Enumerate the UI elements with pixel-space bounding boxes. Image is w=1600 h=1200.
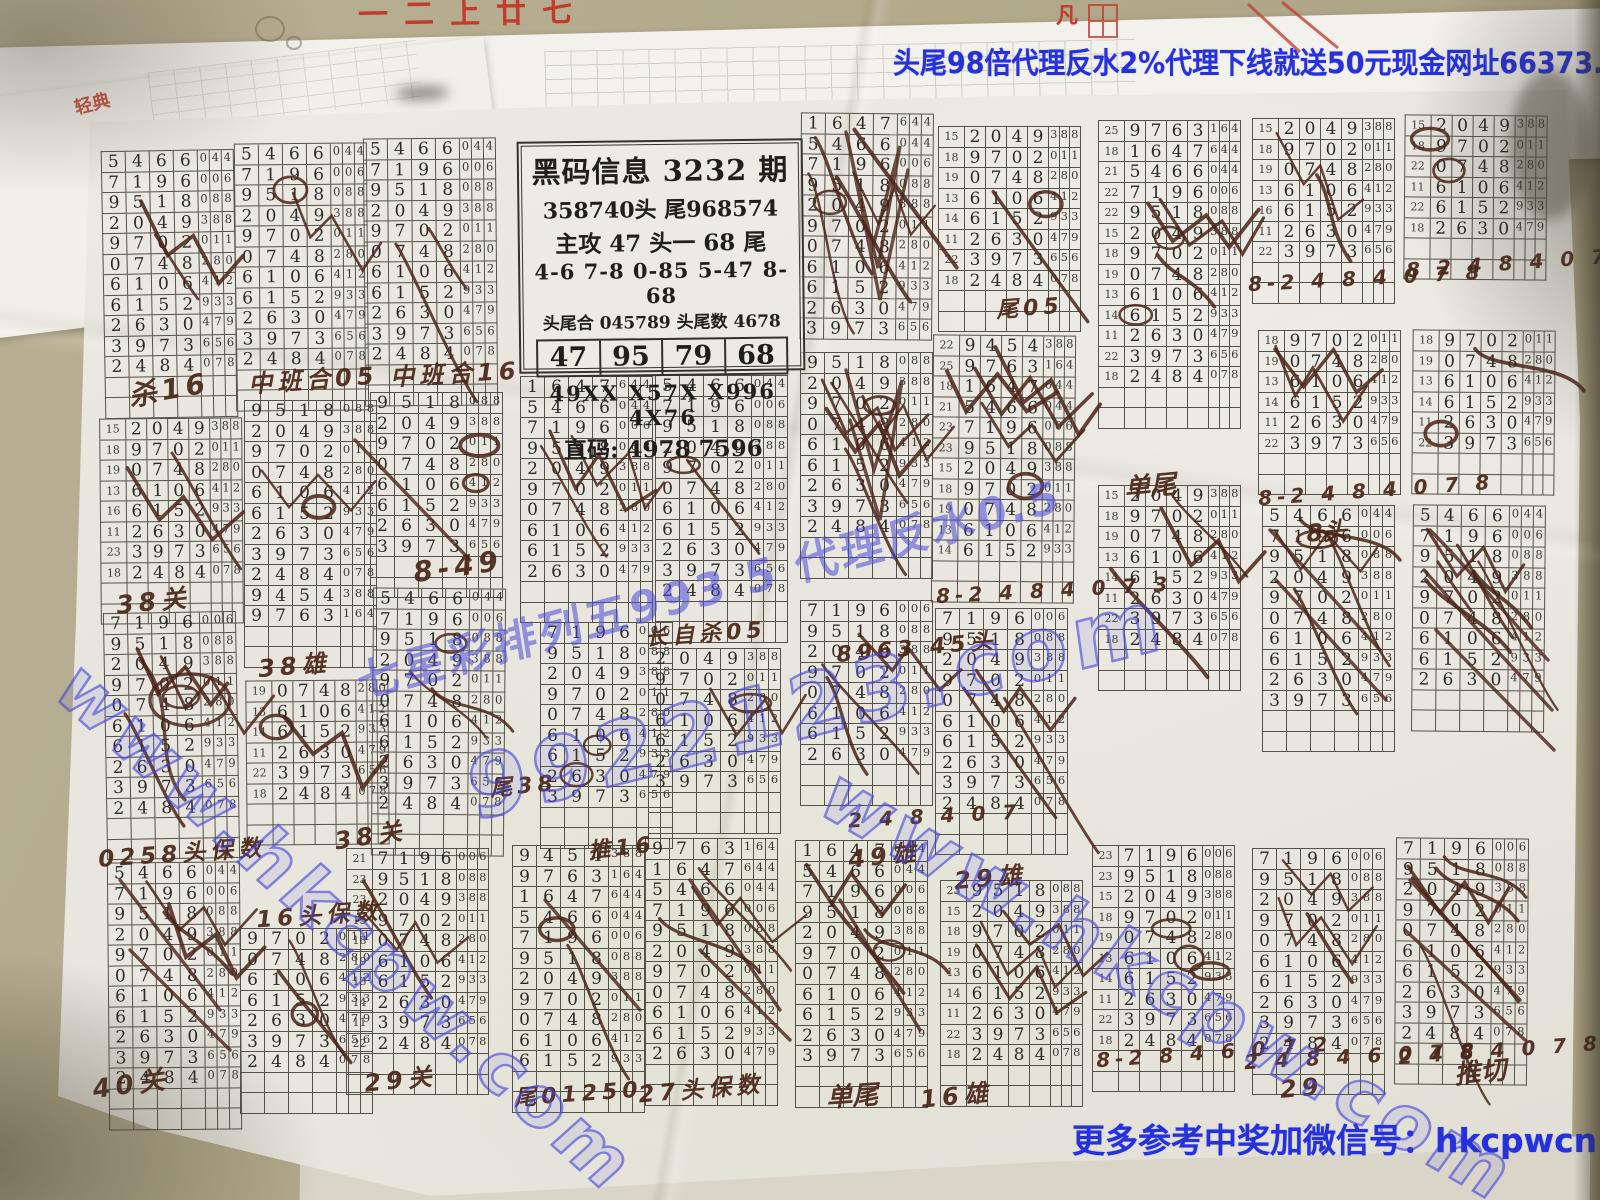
grid-cell: 6 xyxy=(373,952,394,973)
grid-row xyxy=(801,538,933,559)
grid-cell xyxy=(892,1087,904,1108)
grid-cell: 6 xyxy=(174,150,198,171)
row-index-cell: 22 xyxy=(1413,433,1439,454)
grid-cell: 8 xyxy=(1325,931,1349,952)
handwritten-note: 单尾 xyxy=(1122,464,1177,505)
grid-cell: 1 xyxy=(849,353,873,374)
grid-row: 136106412 xyxy=(1093,949,1235,970)
grid-cell: 1 xyxy=(1437,629,1461,650)
grid-row: 189702011 xyxy=(1259,331,1401,352)
grid-cell: 7 xyxy=(1277,911,1301,932)
grid-cell: 6 xyxy=(436,849,457,870)
grid-cell: 6 xyxy=(1125,285,1146,306)
grid-cell: 0 xyxy=(1209,183,1220,204)
row-index-cell: 11 xyxy=(1413,412,1439,433)
row-index-cell: 22 xyxy=(1099,609,1125,630)
grid-cell: 5 xyxy=(395,393,419,414)
grid-cell: 0 xyxy=(697,711,721,732)
grid-cell: 0 xyxy=(1359,547,1371,568)
grid-cell: 2 xyxy=(1125,630,1146,651)
grid-cell: 4 xyxy=(1065,357,1076,378)
grid-cell: 7 xyxy=(697,772,721,793)
grid-cell: 0 xyxy=(1515,137,1526,158)
grid-cell: 0 xyxy=(203,797,215,818)
grid-cell: 9 xyxy=(148,542,169,563)
grid-cell xyxy=(1032,835,1044,856)
grid-row: 2484078 xyxy=(656,581,788,602)
grid-cell: 2 xyxy=(967,1045,988,1066)
grid-cell: 0 xyxy=(897,217,909,238)
grid-row: 9702011 xyxy=(649,670,781,691)
grid-cell: 6 xyxy=(1056,609,1068,630)
grid-cell: 4 xyxy=(766,880,778,901)
grid-cell: 9 xyxy=(1119,867,1140,888)
grid-cell: 0 xyxy=(697,670,721,691)
grid-cell: 2 xyxy=(1413,567,1437,588)
grid-cell: 1 xyxy=(825,456,849,477)
grid-row: 6152933 xyxy=(521,541,653,562)
grid-cell: 9 xyxy=(1051,984,1062,1005)
grid-cell: 4 xyxy=(537,846,561,867)
grid-cell: 6 xyxy=(1049,250,1060,271)
grid-cell xyxy=(436,1075,457,1096)
info-pairs: 4-6 7-8 0-85 5-47 8-68 xyxy=(520,256,803,309)
grid-cell: 2 xyxy=(1342,140,1363,161)
grid-cell: 0 xyxy=(132,925,156,946)
grid-cell: 2 xyxy=(177,674,201,695)
grid-cell: 9 xyxy=(1125,244,1146,265)
grid-cell: 8 xyxy=(1188,527,1209,548)
grid-cell: 3 xyxy=(437,323,461,344)
grid-cell: 0 xyxy=(460,180,472,201)
grid-row: 2630479 xyxy=(646,1044,778,1065)
grid-row: 189702011 xyxy=(1093,908,1235,929)
grid-cell: 3 xyxy=(849,476,873,497)
grid-cell xyxy=(1030,1086,1051,1107)
grid-cell: 6 xyxy=(1209,609,1220,630)
grid-cell: 0 xyxy=(1203,867,1214,888)
grid-cell: 2 xyxy=(178,735,202,756)
grid-cell: 6 xyxy=(1209,142,1220,163)
grid-cell: 3 xyxy=(413,303,437,324)
grid-row: 6106412 xyxy=(801,257,933,279)
grid-cell: 9 xyxy=(1049,209,1060,230)
grid-cell: 7 xyxy=(718,860,742,881)
grid-cell: 7 xyxy=(1167,347,1188,368)
grid-cell: 6 xyxy=(104,295,128,316)
grid-cell: 9 xyxy=(589,623,613,644)
grid-row: 190748280 xyxy=(933,499,1075,521)
grid-cell: 6 xyxy=(1515,1003,1527,1024)
grid-cell xyxy=(214,396,226,417)
grid-cell: 4 xyxy=(1009,902,1030,923)
grid-cell: 8 xyxy=(308,246,332,267)
grid-cell: 2 xyxy=(1279,222,1300,243)
grid-cell: 1 xyxy=(641,480,653,501)
grid-cell xyxy=(1056,814,1068,835)
grid-cell: 0 xyxy=(1396,920,1420,941)
grid-cell: 9 xyxy=(1056,753,1068,774)
grid-cell: 1 xyxy=(646,860,670,881)
grid-cell: 9 xyxy=(742,1024,754,1045)
grid-cell: 0 xyxy=(1209,162,1220,183)
grid-cell: 1 xyxy=(1452,177,1473,198)
grid-cell: 8 xyxy=(1361,931,1373,952)
grid-row: 2630479 xyxy=(1396,982,1528,1004)
grid-cell: 0 xyxy=(472,159,484,180)
grid-cell xyxy=(273,804,294,825)
grid-cell: 9 xyxy=(1263,588,1287,609)
grid-cell: 7 xyxy=(127,233,151,254)
grid-cell: 4 xyxy=(284,246,308,267)
grid-cell: 0 xyxy=(151,233,175,254)
grid-cell: 5 xyxy=(1421,859,1445,880)
grid-cell: 6 xyxy=(1182,846,1203,867)
grid-cell: 7 xyxy=(825,237,849,258)
grid-cell: 7 xyxy=(545,480,569,501)
grid-cell: 9 xyxy=(1042,541,1053,562)
grid-cell: 0 xyxy=(1028,230,1049,251)
grid-cell: 2 xyxy=(796,1026,820,1047)
grid-cell: 0 xyxy=(201,674,213,695)
grid-cell: 9 xyxy=(491,516,503,537)
grid-row: 112630479 xyxy=(1259,413,1401,434)
grid-cell: 9 xyxy=(1230,589,1241,610)
grid-cell: 0 xyxy=(154,715,178,736)
row-index-cell: 14 xyxy=(941,984,967,1005)
grid-cell: 6 xyxy=(545,562,569,583)
grid-cell: 1 xyxy=(468,952,479,973)
grid-row: 136106412 xyxy=(1253,181,1395,202)
grid-cell: 8 xyxy=(766,921,778,942)
grid-cell xyxy=(589,808,613,829)
grid-row: 226152933 xyxy=(1405,197,1547,219)
grid-cell: 4 xyxy=(1349,993,1361,1014)
grid-row: 9518088 xyxy=(1263,547,1395,568)
grid-row: 190748280 xyxy=(1099,527,1241,548)
grid-row: 6152933 xyxy=(936,732,1068,753)
grid-cell: 7 xyxy=(908,299,920,320)
grid-cell: 2 xyxy=(373,1034,394,1055)
grid-cell: 8 xyxy=(228,903,240,924)
grid-cell: 6 xyxy=(211,542,222,563)
row-index-cell: 15 xyxy=(941,902,967,923)
row-index-cell: 22 xyxy=(1259,434,1285,455)
grid-cell: 4 xyxy=(897,745,909,766)
grid-cell: 4 xyxy=(1002,377,1023,398)
grid-cell xyxy=(1520,691,1532,712)
grid-cell: 2 xyxy=(1028,148,1049,169)
grid-cell xyxy=(1520,711,1532,732)
grid-cell: 0 xyxy=(293,442,317,463)
grid-cell: 0 xyxy=(457,911,468,932)
grid-cell: 3 xyxy=(1125,609,1146,630)
grid-cell: 1 xyxy=(1521,588,1533,609)
grid-row: 7196006 xyxy=(1397,838,1529,860)
grid-cell: 0 xyxy=(609,949,621,970)
grid-cell xyxy=(212,583,223,604)
grid-cell: 6 xyxy=(521,541,545,562)
row-index-cell: 22 xyxy=(347,1034,373,1055)
grid-cell: 0 xyxy=(892,944,904,965)
grid-cell: 2 xyxy=(241,1052,265,1073)
grid-cell: 7 xyxy=(670,839,694,860)
grid-cell: 2 xyxy=(1431,218,1452,239)
grid-cell: 1 xyxy=(825,724,849,745)
grid-cell xyxy=(134,1109,158,1130)
grid-cell: 9 xyxy=(1230,326,1241,347)
grid-cell: 1 xyxy=(1374,181,1385,202)
grid-cell: 4 xyxy=(922,135,934,156)
grid-cell: 9 xyxy=(415,849,436,870)
grid-cell: 6 xyxy=(1188,285,1209,306)
grid-cell: 3 xyxy=(127,542,148,563)
grid-row xyxy=(801,558,933,579)
grid-cell xyxy=(1371,732,1383,753)
grid-cell: 8 xyxy=(1072,902,1083,923)
grid-cell: 5 xyxy=(569,541,593,562)
grid-row xyxy=(936,835,1068,856)
grid-cell: 9 xyxy=(1373,993,1385,1014)
grid-cell: 6 xyxy=(1306,413,1327,434)
grid-cell: 0 xyxy=(181,1027,205,1048)
grid-cell: 0 xyxy=(421,712,445,733)
grid-cell: 2 xyxy=(103,213,127,234)
grid-cell: 3 xyxy=(656,561,680,582)
grid-cell: 0 xyxy=(343,164,355,185)
grid-row: 9702011 xyxy=(373,670,505,692)
grid-cell: 4 xyxy=(1209,285,1220,306)
grid-cell: 8 xyxy=(1072,1045,1083,1066)
grid-cell: 6 xyxy=(236,267,260,288)
grid-cell: 2 xyxy=(1369,352,1380,373)
grid-row: 146152933 xyxy=(1093,969,1235,990)
grid-cell: 0 xyxy=(199,232,211,253)
grid-cell xyxy=(909,538,921,559)
grid-cell: 0 xyxy=(236,247,260,268)
grid-cell: 1 xyxy=(1146,285,1167,306)
grid-cell: 8 xyxy=(478,1034,489,1055)
grid-cell: 8 xyxy=(222,191,234,212)
grid-cell: 7 xyxy=(1452,136,1473,157)
grid-cell: 0 xyxy=(897,517,909,538)
grid-cell: 2 xyxy=(873,456,897,477)
grid-cell: 2 xyxy=(210,460,221,481)
grid-cell: 6 xyxy=(521,521,545,542)
grid-cell xyxy=(265,1073,289,1094)
grid-cell: 2 xyxy=(232,480,243,501)
grid-cell xyxy=(801,786,825,807)
grid-cell: 6 xyxy=(1279,181,1300,202)
grid-row: 259763164 xyxy=(934,356,1076,378)
grid-cell: 6 xyxy=(1253,972,1277,993)
grid-cell xyxy=(1146,671,1167,692)
grid-cell: 1 xyxy=(629,521,641,542)
grid-cell: 3 xyxy=(1311,670,1335,691)
grid-cell: 2 xyxy=(868,944,892,965)
grid-cell: 3 xyxy=(1230,306,1241,327)
grid-cell: 4 xyxy=(988,1045,1009,1066)
grid-cell: 0 xyxy=(537,969,561,990)
grid-cell: 6 xyxy=(332,328,344,349)
grid-cell: 3 xyxy=(1220,306,1231,327)
grid-cell xyxy=(337,1093,349,1114)
grid-cell: 0 xyxy=(820,923,844,944)
grid-cell: 9 xyxy=(235,185,259,206)
grid-row: 6106412 xyxy=(513,1031,645,1052)
grid-cell: 2 xyxy=(1359,609,1371,630)
grid-cell: 0 xyxy=(1413,608,1437,629)
grid-cell: 7 xyxy=(513,928,537,949)
grid-cell: 0 xyxy=(178,756,202,777)
grid-cell: 0 xyxy=(313,1011,337,1032)
grid-cell: 8 xyxy=(293,565,317,586)
grid-cell: 1 xyxy=(1504,901,1516,922)
grid-cell: 6 xyxy=(1452,218,1473,239)
grid-row: 237196006 xyxy=(933,417,1075,439)
grid-cell: 0 xyxy=(728,540,752,561)
grid-cell: 9 xyxy=(232,521,243,542)
grid-cell: 2 xyxy=(181,945,205,966)
grid-cell: 8 xyxy=(766,942,778,963)
grid-cell: 0 xyxy=(897,601,909,622)
grid-cell: 9 xyxy=(1383,670,1395,691)
grid-row: 2049388 xyxy=(235,205,367,227)
grid-cell: 8 xyxy=(757,690,769,711)
grid-cell: 1 xyxy=(820,1005,844,1026)
grid-cell: 6 xyxy=(365,262,389,283)
grid-cell xyxy=(1436,690,1460,711)
grid-cell: 8 xyxy=(176,633,200,654)
grid-cell: 8 xyxy=(921,353,933,374)
grid-cell: 8 xyxy=(1214,887,1225,908)
grid-row: 152049388 xyxy=(933,458,1075,480)
grid-cell: 2 xyxy=(478,952,489,973)
grid-cell: 8 xyxy=(909,415,921,436)
grid-cell: 2 xyxy=(373,650,397,671)
grid-cell: 6 xyxy=(190,480,211,501)
grid-row: 9518088 xyxy=(108,903,240,925)
grid-cell xyxy=(420,814,444,835)
grid-cell: 0 xyxy=(1230,265,1241,286)
grid-cell: 4 xyxy=(984,691,1008,712)
grid-cell xyxy=(873,786,897,807)
grid-cell: 8 xyxy=(1505,860,1517,881)
grid-cell: 8 xyxy=(921,196,933,217)
grid-cell: 2 xyxy=(1230,285,1241,306)
grid-cell: 0 xyxy=(415,952,436,973)
grid-cell: 6 xyxy=(422,589,446,610)
grid-cell: 0 xyxy=(284,226,308,247)
grid-row: 9518088 xyxy=(801,175,933,197)
grid-cell: 8 xyxy=(621,1010,633,1031)
grid-cell xyxy=(673,793,697,814)
grid-cell: 0 xyxy=(1056,691,1068,712)
grid-cell: 7 xyxy=(147,460,168,481)
grid-cell: 4 xyxy=(1481,351,1502,372)
grid-cell xyxy=(341,647,353,668)
grid-cell: 3 xyxy=(621,1051,633,1072)
grid-cell: 2 xyxy=(1348,331,1369,352)
grid-cell: 9 xyxy=(294,763,315,784)
grid-cell: 1 xyxy=(1146,548,1167,569)
grid-cell: 4 xyxy=(289,950,313,971)
grid-cell: 2 xyxy=(718,962,742,983)
number-grid: 2597631641816476442154660442271960062295… xyxy=(1098,120,1241,429)
grid-row xyxy=(649,813,781,834)
grid-cell: 0 xyxy=(1032,794,1044,815)
grid-cell xyxy=(158,1109,182,1130)
grid-cell xyxy=(1125,408,1146,429)
grid-cell: 9 xyxy=(265,1032,289,1053)
row-index-cell: 22 xyxy=(1093,1010,1119,1031)
grid-cell xyxy=(107,819,131,840)
grid-cell: 0 xyxy=(147,419,168,440)
grid-cell: 5 xyxy=(849,724,873,745)
grid-cell: 0 xyxy=(482,610,494,631)
grid-cell: 1 xyxy=(766,962,778,983)
grid-row: 6152933 xyxy=(649,731,781,752)
grid-cell: 3 xyxy=(1062,984,1073,1005)
grid-cell: 0 xyxy=(1032,609,1044,630)
grid-row: 5466044 xyxy=(802,134,934,156)
grid-row: 146152933 xyxy=(247,721,389,743)
grid-cell: 6 xyxy=(1051,1025,1062,1046)
row-index-cell: 22 xyxy=(1405,156,1431,177)
grid-cell: 1 xyxy=(1384,140,1395,161)
grid-cell: 4 xyxy=(211,480,222,501)
grid-cell: 0 xyxy=(1473,177,1494,198)
grid-cell: 7 xyxy=(1321,242,1342,263)
grid-cell: 4 xyxy=(201,314,213,335)
paper-circle-mark xyxy=(255,16,285,42)
grid-cell: 0 xyxy=(589,726,613,747)
grid-cell: 9 xyxy=(1523,393,1534,414)
grid-cell xyxy=(849,765,873,786)
grid-cell: 3 xyxy=(1374,201,1385,222)
grid-cell: 0 xyxy=(909,601,921,622)
grid-cell: 3 xyxy=(1301,993,1325,1014)
grid-cell: 0 xyxy=(336,742,357,763)
grid-cell: 8 xyxy=(1517,860,1529,881)
grid-cell: 1 xyxy=(754,962,766,983)
grid-cell: 8 xyxy=(873,176,897,197)
grid-cell: 8 xyxy=(776,581,788,602)
grid-cell: 7 xyxy=(825,394,849,415)
grid-cell: 7 xyxy=(269,463,293,484)
grid-cell: 4 xyxy=(210,150,222,171)
grid-cell: 2 xyxy=(728,520,752,541)
grid-cell: 3 xyxy=(633,1051,645,1072)
grid-cell: 2 xyxy=(1022,480,1043,501)
handwritten-note: 29 xyxy=(1279,1072,1325,1104)
grid-cell: 8 xyxy=(189,460,210,481)
grid-cell: 4 xyxy=(1230,142,1241,163)
grid-cell xyxy=(313,1093,337,1114)
grid-cell: 4 xyxy=(849,374,873,395)
grid-cell: 0 xyxy=(621,928,633,949)
grid-row: 136106412 xyxy=(246,701,388,723)
grid-cell: 3 xyxy=(1030,1025,1051,1046)
grid-cell xyxy=(617,582,629,603)
grid-cell: 6 xyxy=(104,275,128,296)
grid-cell: 1 xyxy=(561,949,585,970)
grid-row: 2630479 xyxy=(245,524,377,545)
grid-cell: 0 xyxy=(1493,839,1505,860)
grid-cell xyxy=(936,835,960,856)
grid-cell: 1 xyxy=(479,475,491,496)
grid-cell xyxy=(825,558,849,579)
